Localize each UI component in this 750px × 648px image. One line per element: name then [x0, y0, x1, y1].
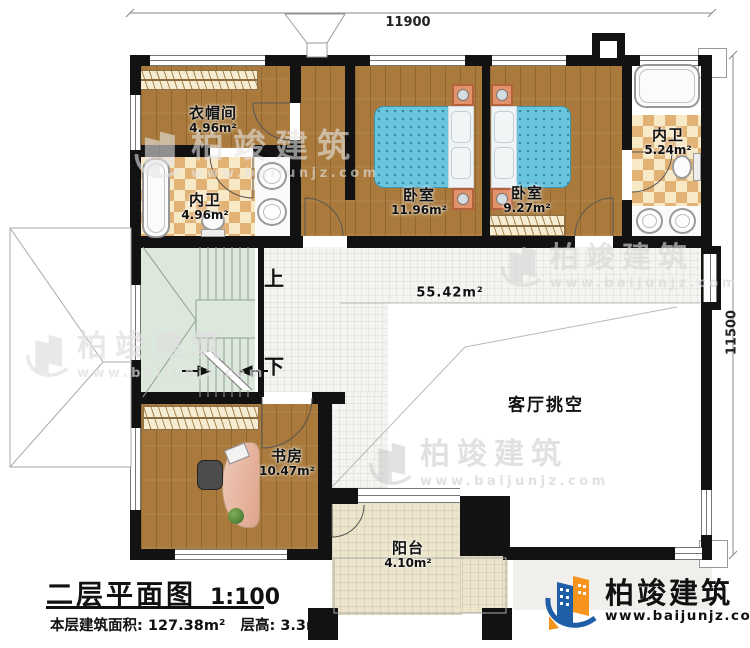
staircase-floor	[141, 245, 255, 400]
sink-bath2-b	[669, 208, 696, 234]
toilet-bath1-tank	[201, 229, 225, 237]
brand-logo-icon	[545, 570, 597, 632]
pillow-bedroom2-b	[494, 147, 514, 179]
room-label-bath2: 内卫 5.24m²	[644, 127, 691, 157]
wall-bedrooms-shared	[482, 66, 490, 236]
wall-study-right	[318, 392, 332, 549]
wall-right	[701, 66, 712, 560]
pillow-bedroom1-a	[451, 111, 471, 143]
brand-name: 柏竣建筑	[605, 578, 750, 608]
wall-bath2-left-a	[622, 66, 632, 150]
window-bottom-living	[675, 547, 702, 560]
wall-cloak-right-a	[290, 66, 301, 103]
wall-balcony-top	[318, 488, 358, 504]
wall-living-bottom	[503, 547, 675, 560]
plant-study	[228, 508, 244, 524]
window-balcony-top	[358, 488, 460, 503]
room-label-study: 书房 10.47m²	[259, 448, 315, 478]
wardrobe-study	[143, 406, 259, 430]
roof-outline	[10, 228, 131, 467]
wall-cloak-right-b	[290, 140, 301, 236]
room-label-cloakroom: 衣帽间 4.96m²	[189, 105, 237, 135]
wall-bedrooms-bottom-b	[347, 236, 575, 248]
room-label-balcony: 阳台 4.10m²	[384, 540, 431, 570]
room-label-living-void: 客厅挑空	[508, 396, 584, 415]
pillow-bedroom1-b	[451, 147, 471, 179]
window-top-cloakroom	[150, 55, 265, 66]
balcony-pillar-right	[482, 608, 512, 640]
wardrobe-cloakroom	[140, 70, 258, 90]
wall-bedroom1-left	[345, 66, 355, 200]
title-area-line: 本层建筑面积: 127.38m² 层高: 3.3m	[50, 614, 321, 635]
toilet-bath2	[672, 155, 692, 179]
toilet-bath2-tank	[693, 153, 701, 181]
dimension-right: 11500	[725, 307, 740, 359]
bed-bedroom2	[515, 106, 571, 188]
chimney-top-inner	[600, 41, 617, 58]
room-label-bedroom1: 卧室 11.96m²	[391, 187, 447, 217]
watermark-brand-glyph-icon	[25, 330, 69, 382]
floor-plan-canvas: 衣帽间 4.96m² 内卫 4.96m² 卧室 11.96m² 卧室 9.27m…	[0, 0, 750, 648]
sink-bath1-a	[257, 162, 287, 190]
watermark: 柏竣建筑 www.baijunjz.com	[368, 438, 609, 490]
skylight-funnel	[285, 14, 345, 57]
window-bay	[703, 254, 717, 302]
bed-bedroom1	[374, 106, 450, 188]
wall-study-top-a	[130, 392, 262, 404]
window-left-study	[130, 428, 141, 510]
bathtub-bath1	[142, 158, 170, 238]
dimension-top: 11900	[378, 15, 438, 30]
window-top-bedroom2	[492, 55, 566, 66]
wall-balcony-corner-block	[460, 496, 510, 556]
stairs-up-label: 上	[264, 263, 284, 292]
window-bottom-study	[175, 549, 287, 560]
room-label-bedroom2: 卧室 9.27m²	[503, 185, 550, 215]
bathtub-bath2	[634, 64, 700, 108]
window-top-bedroom1	[370, 55, 465, 66]
wall-bath2-left-b	[622, 200, 632, 236]
room-balcony-floor-ext	[462, 556, 508, 613]
sink-bath2-a	[636, 208, 663, 234]
wall-bath1-divider-a	[130, 145, 210, 157]
window-right-living	[701, 490, 712, 535]
sink-bath1-b	[257, 198, 287, 226]
stairs-down-label: 下	[264, 351, 284, 380]
wall-bedrooms-bottom-c	[613, 236, 712, 248]
brand-url: www.baijunjz.com	[605, 608, 750, 624]
nightstand-bedroom2-a	[491, 84, 513, 106]
title-underline	[46, 606, 264, 609]
nightstand-bedroom1-a	[452, 84, 474, 106]
chair-study	[197, 460, 223, 490]
pillow-bedroom2-a	[494, 111, 514, 143]
corridor-floor-lower	[332, 392, 388, 488]
window-left-bath1	[130, 95, 141, 150]
room-label-bath1: 内卫 4.96m²	[181, 192, 228, 222]
wardrobe-bedroom2	[489, 215, 565, 236]
brand-logo: 柏竣建筑 www.baijunjz.com	[545, 570, 750, 632]
nightstand-bedroom1-b	[452, 188, 474, 210]
hall-area-label: 55.42m²	[416, 287, 483, 302]
window-left-stairs	[130, 285, 141, 360]
